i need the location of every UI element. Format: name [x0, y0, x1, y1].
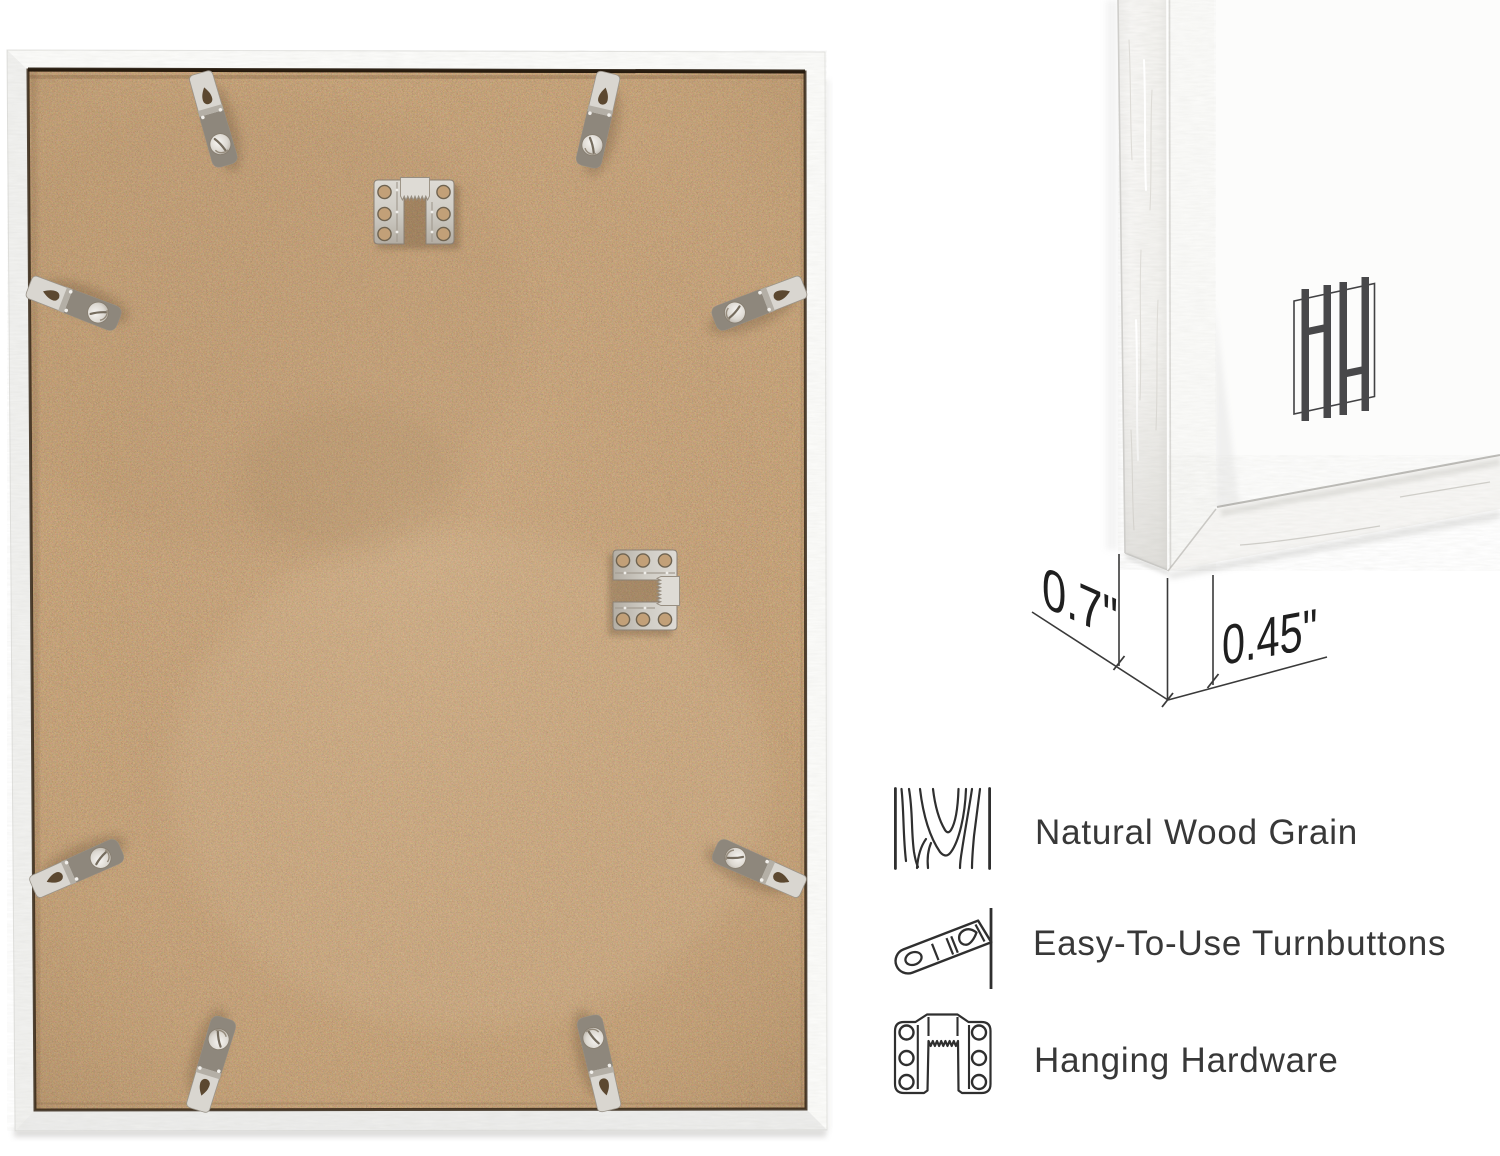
svg-text:Hanging Hardware: Hanging Hardware [1034, 1041, 1339, 1080]
svg-text:Easy-To-Use Turnbuttons: Easy-To-Use Turnbuttons [1033, 924, 1446, 963]
svg-text:Natural Wood Grain: Natural Wood Grain [1035, 813, 1358, 852]
